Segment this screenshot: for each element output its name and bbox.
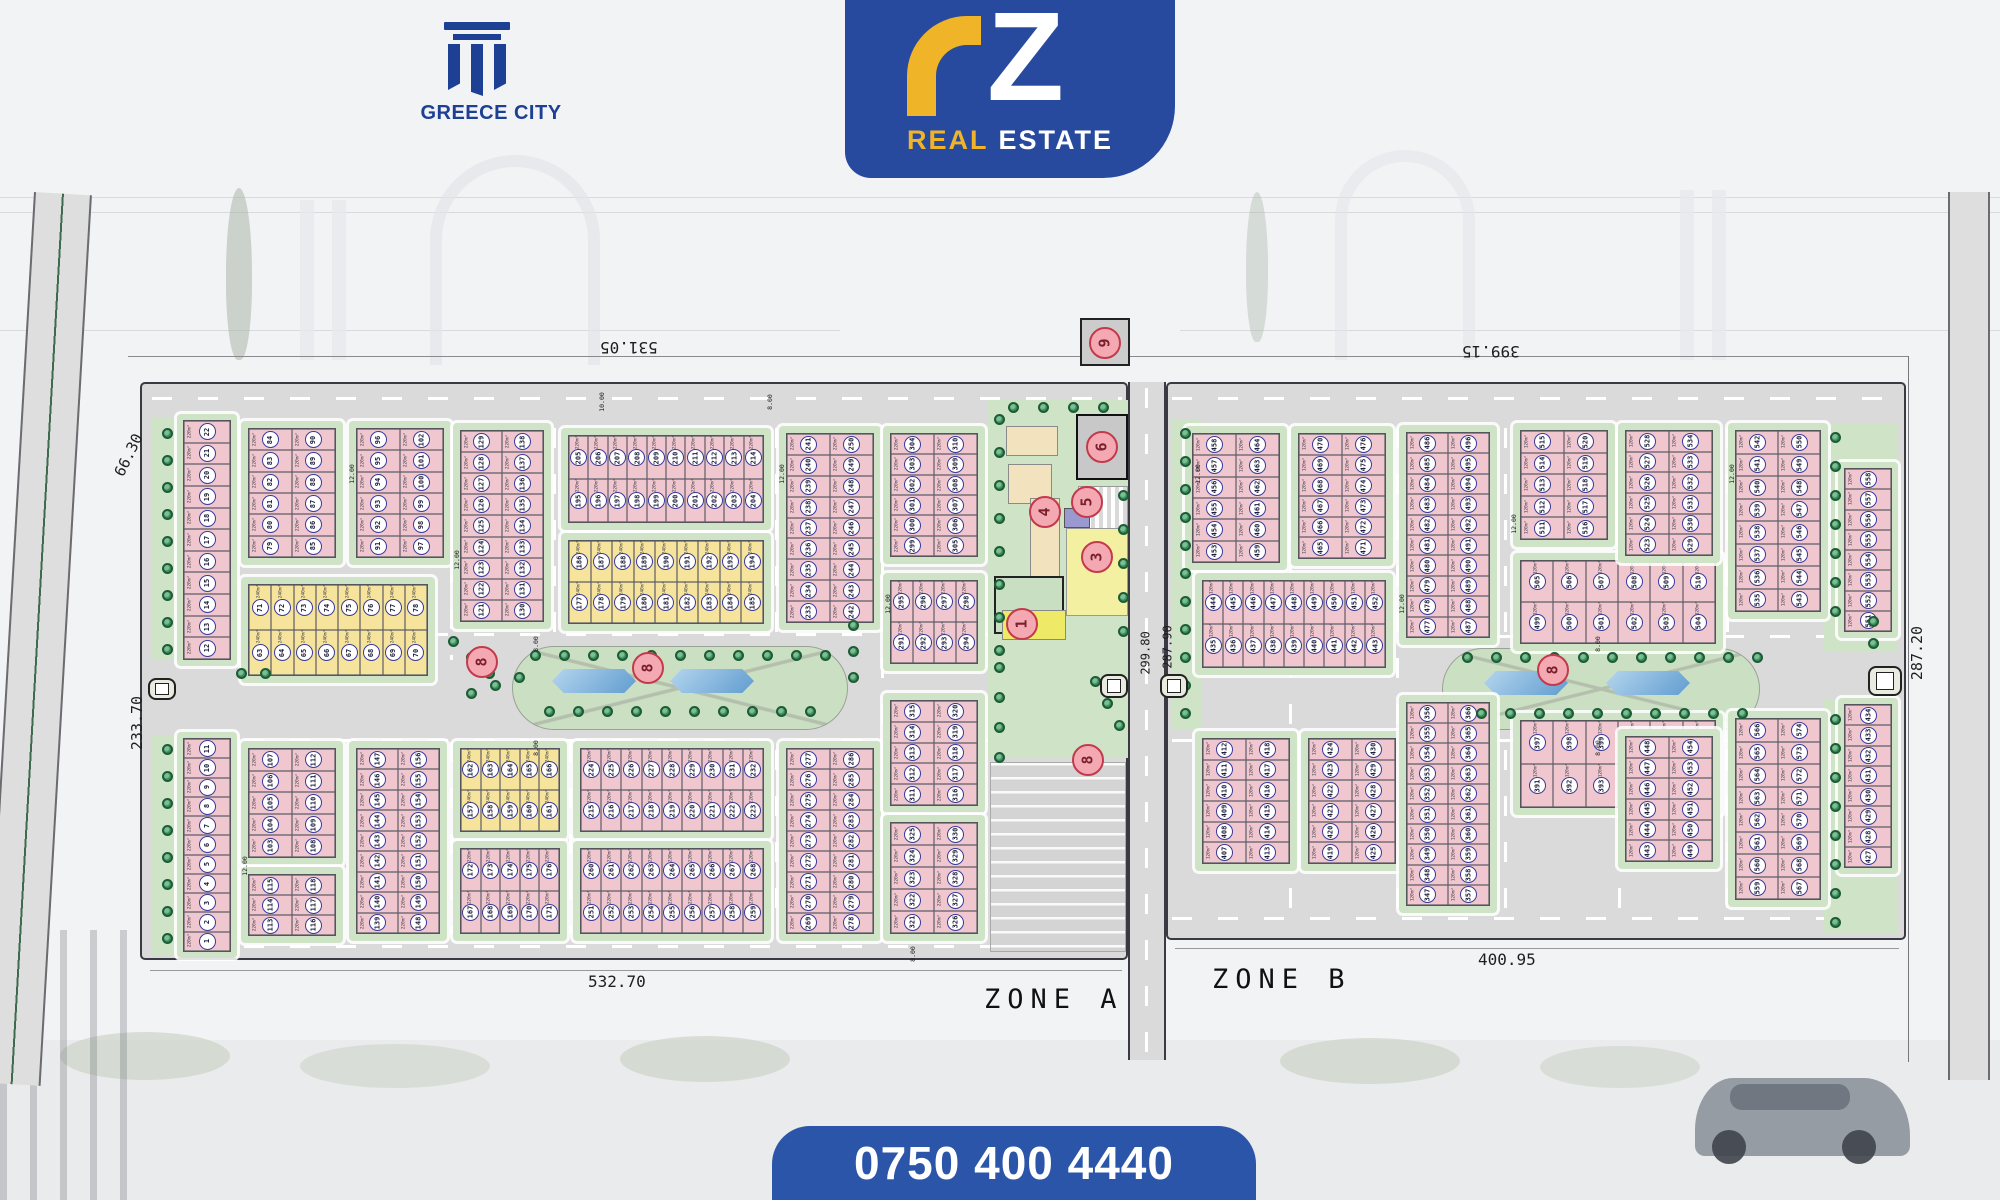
plot-number-circle: 285 [843,771,860,788]
district-number-marker: 4 [1029,496,1061,528]
plot: 220m²296 [913,581,935,622]
plot-number-circle: 557 [1860,491,1877,508]
plot-number-circle: 172 [462,862,479,879]
plot: 220m²250 [830,434,873,455]
plot-area-label: 220m² [668,891,673,905]
plot-area-label: 220m² [403,539,408,553]
plot-number-circle: 413 [1259,844,1276,861]
plot: 120m²447 [1626,758,1669,779]
plot: 120m²562 [1736,809,1778,832]
plot-area-label: 220m² [898,581,903,595]
plot-number-circle: 412 [1216,741,1233,758]
plot-area-label: 120m² [1848,748,1853,762]
plot: 120m²467 [1299,496,1342,517]
plot: 220m²305 [934,536,977,556]
plot-area-label: 120m² [1739,480,1744,494]
tree-icon [1830,714,1841,725]
plot-number-circle: 112 [305,751,322,768]
plot-area-label: 220m² [894,746,899,760]
plot: 220m²294 [956,622,978,663]
plot-number-circle: 70 [407,644,424,661]
plot: 220m²130 [502,600,543,621]
plot-number-circle: 235 [800,561,817,578]
plot-area-label: 220m² [464,561,469,575]
plot-area-label: 120m² [1206,825,1211,839]
plot-area-label: 220m² [648,849,653,863]
plot-area-label: 120m² [1451,579,1456,593]
district-number-marker: 6 [1086,431,1118,463]
plot: 120m²453 [1669,758,1712,779]
plot: 220m²240 [787,455,830,476]
plot-area-label: 120m² [1566,561,1571,575]
plot-area-label: 120m² [1410,706,1415,720]
plot-area-label: 220m² [628,749,633,763]
plot-area-label: 220m² [628,891,633,905]
plot: 120m²487 [1448,617,1489,637]
plot-area-label: 220m² [668,790,673,804]
plot-number-circle: 474 [1355,477,1372,494]
plot-area-label: 240m² [506,749,511,763]
plot: 120m²552 [1845,591,1891,611]
tree-icon [1563,708,1574,719]
plot-area-label: 220m² [894,767,899,781]
road-width-label: 10.00 [598,392,606,412]
plot-number-circle: 295 [893,593,910,610]
plot-area-label: 120m² [1355,763,1360,777]
plot-area-label: 120m² [1410,620,1415,634]
plot-number-circle: 470 [1312,436,1329,453]
tree-icon [573,706,584,717]
plot: 220m²8 [184,797,230,816]
plot-number-circle: 174 [501,862,518,879]
plot: 120m²561 [1736,832,1778,855]
plot: 220m²273 [787,831,830,851]
plot: 220m²300 [891,515,934,535]
plot: 220m²275 [787,790,830,810]
plot-number-circle: 440 [1306,637,1323,654]
plot: 120m²427 [1845,847,1891,867]
road-width-label: 12.00 [241,856,249,876]
plot-number-circle: 160 [521,802,538,819]
plot: 220m²95 [357,450,400,471]
plot-area-label: 220m² [833,521,838,535]
plot-number-circle: 243 [843,582,860,599]
plot-area-label: 120m² [1410,579,1415,593]
district-number-marker: 8 [1537,654,1569,686]
plot-area-label: 240m² [487,749,492,763]
plot-number-circle: 73 [296,599,313,616]
plot-number-circle: 465 [1312,539,1329,556]
plot: 220m²96 [357,429,400,450]
plot-area-label: 220m² [401,895,406,909]
plot-area-label: 220m² [464,476,469,490]
plot: 120m²439 [1284,624,1304,667]
plot: 220m²202 [705,479,724,522]
plot-number-circle: 76 [363,599,380,616]
plot: 220m²325 [891,823,934,845]
plot: 220m²212 [705,436,724,479]
plot-number-circle: 16 [199,553,216,570]
plot: 120m²356 [1407,703,1448,723]
plot-number-circle: 517 [1577,498,1594,515]
edge-plot-strip: 220m²11220m²10220m²9220m²8220m²7220m²622… [183,738,231,952]
plot-number-circle: 446 [1245,594,1262,611]
plot: 120m²570 [1778,809,1820,832]
plot-number-circle: 534 [1682,433,1699,450]
plot-number-circle: 262 [623,862,640,879]
plot-area-label: 120m² [1630,602,1635,616]
plot-area-label: 220m² [295,539,300,553]
plot-area-label: 220m² [633,479,638,493]
plot-area-label: 220m² [920,622,925,636]
plot-number-circle: 459 [1249,543,1266,560]
tree-icon [1114,720,1125,731]
plot-number-circle: 446 [1639,780,1656,797]
plot: 120m²542 [1736,431,1778,454]
plot: 220m²89 [292,450,335,471]
plot-area-label: 220m² [790,875,795,889]
plot-area-label: 120m² [1249,742,1254,756]
plot-number-circle: 416 [1259,782,1276,799]
plot-area-label: 220m² [750,436,755,450]
tree-icon [1868,638,1879,649]
plot-area-label: 120m² [1524,456,1529,470]
tree-icon [1694,652,1705,663]
plot-area-label: 240m² [545,790,550,804]
plot-number-circle: 360 [1460,826,1477,843]
plot-number-circle: 14 [199,596,216,613]
tree-icon [733,650,744,661]
road-center-dash [553,428,556,656]
plot-area-label: 120m² [1410,538,1415,552]
plot-number-circle: 356 [1419,705,1436,722]
plot: 120m²436 [1223,624,1243,667]
plot-area-label: 220m² [252,918,257,932]
plot-area-label: 240m² [467,790,472,804]
plot-area-label: 120m² [1629,517,1634,531]
plot-area-label: 120m² [1672,740,1677,754]
plot-area-label: 120m² [1249,825,1254,839]
plot-area-label: 220m² [187,857,192,871]
plot: 120m²444 [1626,820,1669,841]
plot: 220m²115 [249,875,292,895]
plot: 220m²210 [666,436,685,479]
plot-area-label: 220m² [464,498,469,512]
plot-number-circle: 549 [1791,456,1808,473]
plot-area-label: 220m² [575,479,580,493]
plot-number-circle: 236 [800,540,817,557]
plot-area-label: 120m² [1290,581,1295,595]
plot-area-label: 120m² [1629,496,1634,510]
plot-number-circle: 553 [1860,572,1877,589]
plot: 120m²449 [1304,581,1324,624]
plot-area-label: 120m² [1848,809,1853,823]
plot-number-circle: 90 [305,431,322,448]
plot: 220m²223 [743,790,763,831]
plot-area-label: 240m² [684,541,689,555]
plot: 120m²421 [1309,801,1352,822]
plot-area-label: 220m² [894,871,899,885]
plot: 120m²445 [1223,581,1243,624]
plot-area-label: 220m² [691,436,696,450]
plot-number-circle: 198 [628,492,645,509]
plot: 220m²248 [830,476,873,497]
plot-area-label: 220m² [252,839,257,853]
plot: 120m²359 [1448,844,1489,864]
plot: 220m²299 [891,536,934,556]
tree-icon [1592,708,1603,719]
plot-area-label: 220m² [937,746,942,760]
plot: 220m²239 [787,476,830,497]
tree-icon [776,706,787,717]
plot-area-label: 220m² [252,496,257,510]
road-width-label: 8.00 [1594,636,1602,652]
plot-area-label: 120m² [1230,624,1235,638]
plot-area-label: 120m² [1848,728,1853,742]
plot-area-label: 240m² [323,585,328,599]
survey-line-bottom-a [150,970,1122,971]
plot-number-circle: 122 [473,581,490,598]
plot-area-label: 220m² [633,436,638,450]
plot-number-circle: 206 [590,449,607,466]
plot-number-circle: 541 [1749,456,1766,473]
plot-area-label: 120m² [1672,537,1677,551]
plot-area-label: 120m² [1312,845,1317,859]
plot-number-circle: 306 [947,517,964,534]
plot: 120m²513 [1521,474,1564,496]
plot-number-circle: 310 [947,436,964,453]
plot-area-label: 120m² [1410,867,1415,881]
survey-line-top [128,356,1908,357]
plot-number-circle: 448 [1639,739,1656,756]
plot-number-circle: 437 [1245,637,1262,654]
plot-number-circle: 105 [262,794,279,811]
plot: 220m²231 [723,749,743,790]
plot-number-circle: 464 [1249,436,1266,453]
plot: 220m²176 [539,849,559,891]
tree-icon [994,480,1005,491]
plot: 240m²186 [569,541,591,582]
plot: 220m²137 [502,452,543,473]
tree-icon [1180,568,1191,579]
dimension-label: 531.05 [600,338,658,357]
plot-block: 220m²96220m²102220m²95220m²101220m²94220… [356,428,444,558]
plot: 120m²485 [1407,453,1448,473]
plot: 220m²173 [481,849,501,891]
plot-area-label: 120m² [1302,478,1307,492]
plot-number-circle: 283 [843,812,860,829]
plot-number-circle: 325 [904,826,921,843]
plot-area-label: 220m² [894,498,899,512]
plot-area-label: 240m² [390,585,395,599]
plot-number-circle: 520 [1577,433,1594,450]
plot-area-label: 220m² [648,891,653,905]
road-width-label: 8.00 [1594,740,1602,756]
plot-area-label: 120m² [1290,624,1295,638]
plot-number-circle: 457 [1206,457,1223,474]
plot: 220m²132 [502,558,543,579]
plot-number-circle: 211 [687,449,704,466]
plot: 120m²462 [1236,477,1279,498]
plot-area-label: 220m² [187,876,192,890]
plot: 220m²11 [184,739,230,758]
plot-number-circle: 4 [199,875,216,892]
plot: 220m²318 [934,743,977,764]
tree-icon [1830,519,1841,530]
plot-area-label: 120m² [1739,570,1744,584]
plot-number-circle: 511 [1534,520,1551,537]
district-number-marker: 9 [1089,327,1121,359]
plot-area-label: 220m² [295,839,300,853]
plot-area-label: 240m² [598,541,603,555]
plot-number-circle: 313 [904,744,921,761]
plot-number-circle: 139 [369,914,386,931]
plot: 120m²492 [1448,515,1489,535]
plot: 120m²499 [1521,602,1553,643]
plot: 120m²473 [1342,496,1385,517]
plot-block: 120m²448120m²454120m²447120m²453120m²446… [1625,736,1713,862]
plot-area-label: 220m² [614,436,619,450]
plot: 120m²493 [1448,494,1489,514]
plot-area-label: 120m² [1848,553,1853,567]
plot-number-circle: 422 [1322,782,1339,799]
plot-number-circle: 189 [636,553,653,570]
tree-icon [994,447,1005,458]
plot: 220m²265 [682,849,702,891]
tree-icon [162,563,173,574]
road-width-label: 12.00 [1194,464,1202,484]
plot-area-label: 220m² [648,749,653,763]
plot: 220m²108 [292,835,335,857]
plot: 220m²310 [934,434,977,454]
tree-icon [1830,548,1841,559]
plot-area-label: 120m² [1848,573,1853,587]
plot-number-circle: 266 [704,862,721,879]
plot: 240m²164 [500,749,520,790]
plot-number-circle: 115 [262,877,279,894]
plot-area-label: 220m² [187,934,192,948]
plot-area-label: 220m² [833,479,838,493]
plot: 120m²398 [1553,721,1585,764]
plot-area-label: 120m² [1672,843,1677,857]
plot: 220m²276 [787,769,830,789]
plot: 240m²192 [698,541,720,582]
plot: 220m²220 [682,790,702,831]
plot: 220m²101 [400,450,443,471]
plot: 240m²178 [591,582,613,623]
tree-icon [994,546,1005,557]
plot-area-label: 220m² [709,849,714,863]
plot-number-circle: 545 [1791,546,1808,563]
plot-area-label: 120m² [1451,827,1456,841]
plot: 220m²214 [744,436,763,479]
plot: 220m²280 [830,872,873,892]
plot: 120m²351 [1407,804,1448,824]
plot: 220m²125 [461,515,502,536]
plot: 220m²103 [249,835,292,857]
plot: 240m²74 [316,585,338,630]
plot-number-circle: 574 [1791,722,1808,739]
plot-number-circle: 500 [1561,614,1578,631]
plot-area-label: 120m² [1239,523,1244,537]
tree-icon [994,513,1005,524]
plot: 120m²412 [1203,739,1246,760]
plot-number-circle: 535 [1749,591,1766,608]
plot-number-circle: 442 [1346,637,1363,654]
plot-number-circle: 458 [1206,436,1223,453]
plot: 220m²3 [184,893,230,912]
plot-area-label: 220m² [790,604,795,618]
plot: 120m²545 [1778,544,1820,567]
plot-area-label: 220m² [505,455,510,469]
plot-number-circle: 79 [262,538,279,555]
plot-area-label: 220m² [937,725,942,739]
plot-number-circle: 166 [541,761,558,778]
plot-number-circle: 503 [1658,614,1675,631]
plot-number-circle: 261 [603,862,620,879]
tree-icon [1008,402,1019,413]
plot-area-label: 220m² [401,915,406,929]
plot: 220m²216 [601,790,621,831]
plot-area-label: 220m² [575,436,580,450]
road-width-label: 12.00 [884,594,892,614]
plot-area-label: 220m² [730,479,735,493]
plot: 220m²234 [787,580,830,601]
plot-number-circle: 205 [570,449,587,466]
plot-block: 120m²542120m²550120m²541120m²549120m²540… [1735,430,1821,612]
plot-area-label: 120m² [1451,807,1456,821]
plot: 120m²564 [1736,764,1778,787]
plot-number-circle: 274 [800,812,817,829]
plot: 240m²159 [500,790,520,831]
tree-icon [162,933,173,944]
plot: 120m²508 [1618,561,1650,602]
plot-area-label: 220m² [709,749,714,763]
plot-number-circle: 164 [501,761,518,778]
plot-block: 120m²515120m²520120m²514120m²519120m²513… [1520,430,1608,540]
plot-block: 220m²147220m²156220m²146220m²155220m²145… [356,748,440,934]
plot-number-circle: 229 [684,761,701,778]
plot-area-label: 120m² [1410,746,1415,760]
plot-number-circle: 110 [305,794,322,811]
plot: 220m²282 [830,831,873,851]
plot: 220m²312 [891,763,934,784]
plot-number-circle: 224 [583,761,600,778]
plot-area-label: 120m² [1410,477,1415,491]
plot-area-label: 120m² [1451,726,1456,740]
tree-icon [1118,490,1129,501]
plot-area-label: 120m² [1351,624,1356,638]
plot-number-circle: 275 [800,792,817,809]
plot-number-circle: 170 [521,904,538,921]
plot-number-circle: 80 [262,516,279,533]
plot: 220m²209 [647,436,666,479]
plot: 220m²149 [398,892,439,912]
plot-number-circle: 3 [199,894,216,911]
plot-number-circle: 482 [1419,516,1436,533]
plot-number-circle: 291 [893,634,910,651]
plot: 240m²189 [634,541,656,582]
plot-area-label: 120m² [1781,502,1786,516]
plot: 120m²535 [1736,589,1778,612]
plot-number-circle: 125 [473,517,490,534]
plot-number-circle: 451 [1682,801,1699,818]
plot: 240m²72 [271,585,293,630]
plot: 220m²255 [662,891,682,933]
plot-number-circle: 508 [1626,573,1643,590]
plot-number-circle: 529 [1682,536,1699,553]
plot-area-label: 240m² [256,630,261,644]
